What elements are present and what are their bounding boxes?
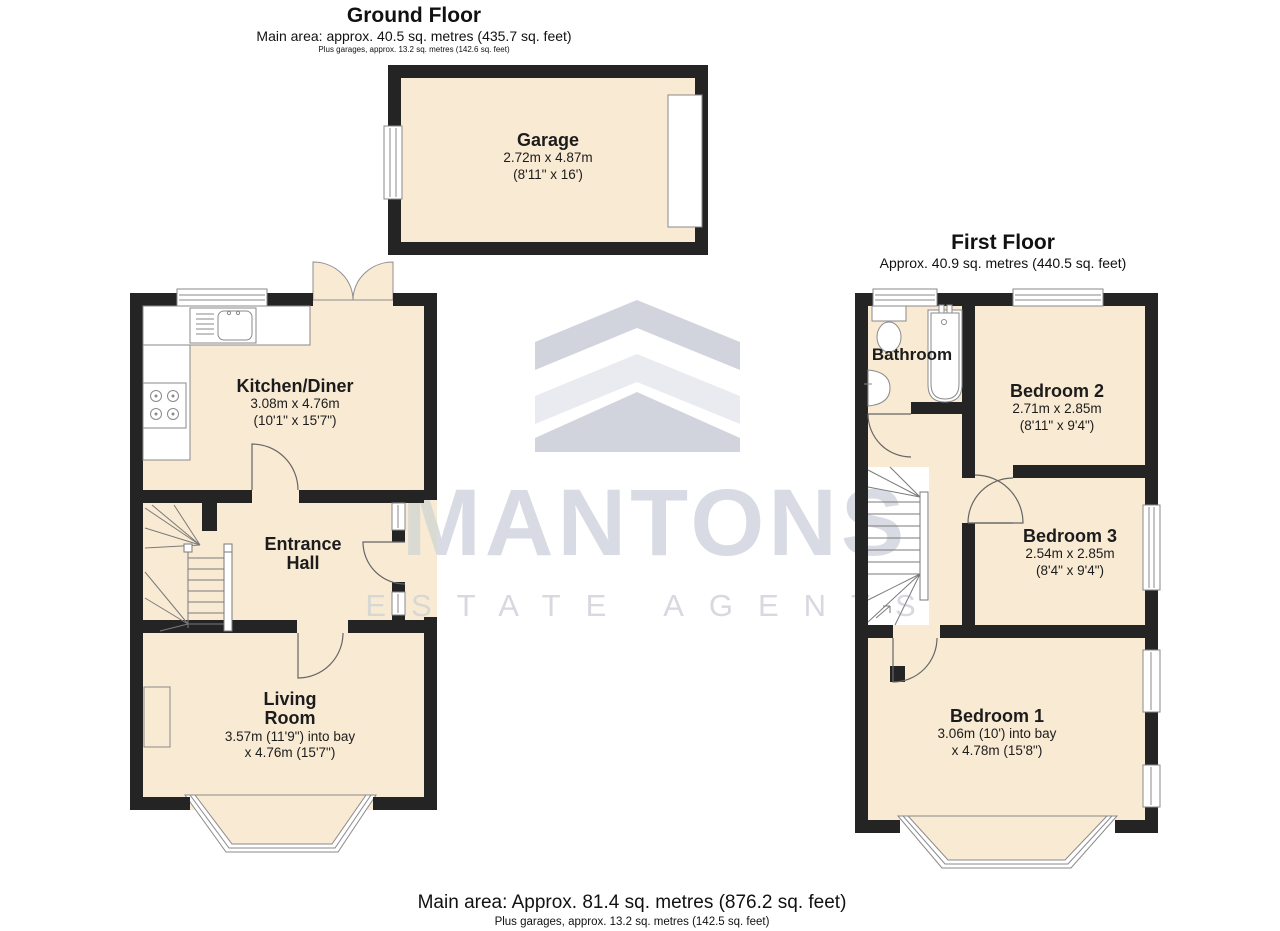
entrance-hall-label: Entrance Hall xyxy=(228,535,378,574)
first-floor-area: Approx. 40.9 sq. metres (440.5 sq. feet) xyxy=(853,255,1153,272)
bedroom1-bay-window xyxy=(898,816,1117,868)
living-room-bay-window xyxy=(185,795,376,852)
garage-label: Garage 2.72m x 4.87m (8'11" x 16') xyxy=(423,131,673,183)
ground-floor-title: Ground Floor xyxy=(239,4,589,28)
kitchen-label: Kitchen/Diner 3.08m x 4.76m (10'1" x 15'… xyxy=(180,377,410,429)
kitchen-window xyxy=(177,289,267,306)
footer-main-area: Main area: Approx. 81.4 sq. metres (876.… xyxy=(332,891,932,915)
garage-window xyxy=(384,126,402,199)
bedroom1-label: Bedroom 1 3.06m (10') into bay x 4.78m (… xyxy=(880,707,1114,759)
first-floor-stairs xyxy=(868,467,929,625)
living-room-label: Living Room 3.57m (11'9") into bay x 4.7… xyxy=(175,690,405,761)
bathroom-label: Bathroom xyxy=(854,346,970,364)
garage-door xyxy=(668,95,702,227)
first-floor-header: First Floor Approx. 40.9 sq. metres (440… xyxy=(853,231,1153,272)
bedroom3-label: Bedroom 3 2.54m x 2.85m (8'4" x 9'4") xyxy=(973,527,1167,579)
living-room-fireplace xyxy=(144,687,170,747)
bedroom2-label: Bedroom 2 2.71m x 2.85m (8'11" x 9'4") xyxy=(960,382,1154,434)
floorplan-page: Ground Floor Main area: approx. 40.5 sq.… xyxy=(0,0,1280,931)
rear-double-doors xyxy=(313,262,393,300)
first-floor-title: First Floor xyxy=(853,231,1153,255)
ground-floor-garage-note: Plus garages, approx. 13.2 sq. metres (1… xyxy=(239,45,589,55)
ground-floor-header: Ground Floor Main area: approx. 40.5 sq.… xyxy=(239,4,589,55)
page-footer: Main area: Approx. 81.4 sq. metres (876.… xyxy=(332,891,932,929)
ground-floor-area: Main area: approx. 40.5 sq. metres (435.… xyxy=(239,28,589,45)
footer-garage-note: Plus garages, approx. 13.2 sq. metres (1… xyxy=(332,915,932,929)
kitchen-sink xyxy=(190,308,256,343)
